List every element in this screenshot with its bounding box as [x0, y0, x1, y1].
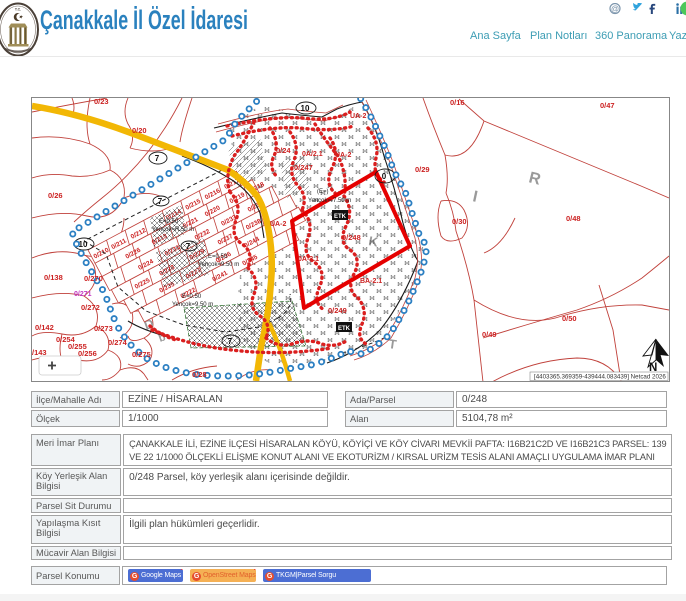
svg-text:Yençok=9.50 m: Yençok=9.50 m — [172, 302, 213, 308]
svg-text:0/249: 0/249 — [328, 306, 347, 315]
svg-text:BA-2.1: BA-2.1 — [360, 278, 382, 285]
svg-text:UA-2: UA-2 — [270, 221, 286, 228]
svg-text:10: 10 — [301, 104, 310, 113]
svg-text:T.C.: T.C. — [15, 8, 21, 12]
svg-text:0/272: 0/272 — [81, 303, 100, 312]
svg-text:0/275: 0/275 — [132, 350, 151, 359]
svg-text:[4403365.369359-439444.083439]: [4403365.369359-439444.083439] Netcad 20… — [534, 374, 666, 381]
svg-text:0/28: 0/28 — [192, 370, 207, 379]
svg-text:E=0.50: E=0.50 — [159, 219, 179, 225]
svg-text:0/271: 0/271 — [74, 291, 92, 298]
svg-text:0/20: 0/20 — [132, 126, 147, 135]
svg-text:UA-2: UA-2 — [335, 152, 351, 159]
svg-text:0/48: 0/48 — [566, 214, 581, 223]
svg-text:7: 7 — [228, 337, 233, 346]
svg-text:0A/2.1: 0A/2.1 — [302, 151, 323, 158]
svg-text:0: 0 — [382, 172, 387, 181]
svg-text:I: I — [471, 188, 479, 206]
svg-text:0/138: 0/138 — [44, 273, 63, 282]
svg-text:0/270: 0/270 — [84, 274, 103, 283]
svg-text:0/26: 0/26 — [48, 191, 63, 200]
svg-text:E=0.50: E=0.50 — [182, 294, 202, 300]
svg-text:7: 7 — [158, 197, 163, 206]
svg-text:0/50: 0/50 — [562, 314, 577, 323]
svg-text:0/16: 0/16 — [450, 98, 465, 107]
svg-text:R: R — [527, 169, 543, 188]
svg-text:0A-2.1: 0A-2.1 — [298, 256, 319, 263]
svg-text:0/49: 0/49 — [482, 330, 497, 339]
svg-text:0/29: 0/29 — [415, 165, 430, 174]
svg-text:(E=): (E=) — [317, 189, 329, 195]
svg-text:Yençok=9.50 m: Yençok=9.50 m — [198, 262, 239, 268]
svg-text:@: @ — [611, 4, 619, 13]
svg-text:0/30: 0/30 — [452, 217, 467, 226]
svg-text:0/274: 0/274 — [108, 338, 128, 347]
svg-text:E=0.50: E=0.50 — [208, 254, 228, 260]
svg-text:0/142: 0/142 — [35, 323, 54, 332]
svg-text:ETK: ETK — [338, 326, 351, 332]
svg-text:0/23: 0/23 — [94, 98, 109, 106]
svg-text:7: 7 — [155, 154, 160, 163]
svg-text:0/47: 0/47 — [600, 101, 615, 110]
svg-text:0/273: 0/273 — [94, 324, 113, 333]
svg-text:7: 7 — [186, 242, 191, 251]
svg-text:ETK: ETK — [334, 214, 347, 220]
svg-text:10: 10 — [79, 240, 88, 249]
svg-text:0/24: 0/24 — [276, 146, 291, 155]
svg-text:0/247: 0/247 — [294, 163, 313, 172]
svg-text:UA-2: UA-2 — [350, 113, 366, 120]
svg-text:Yençok=-7.50 m: Yençok=-7.50 m — [308, 198, 351, 204]
svg-text:0/256: 0/256 — [78, 349, 97, 358]
svg-text:0/248: 0/248 — [342, 233, 361, 242]
svg-text:Yençok=R.50 m: Yençok=R.50 m — [152, 227, 194, 233]
